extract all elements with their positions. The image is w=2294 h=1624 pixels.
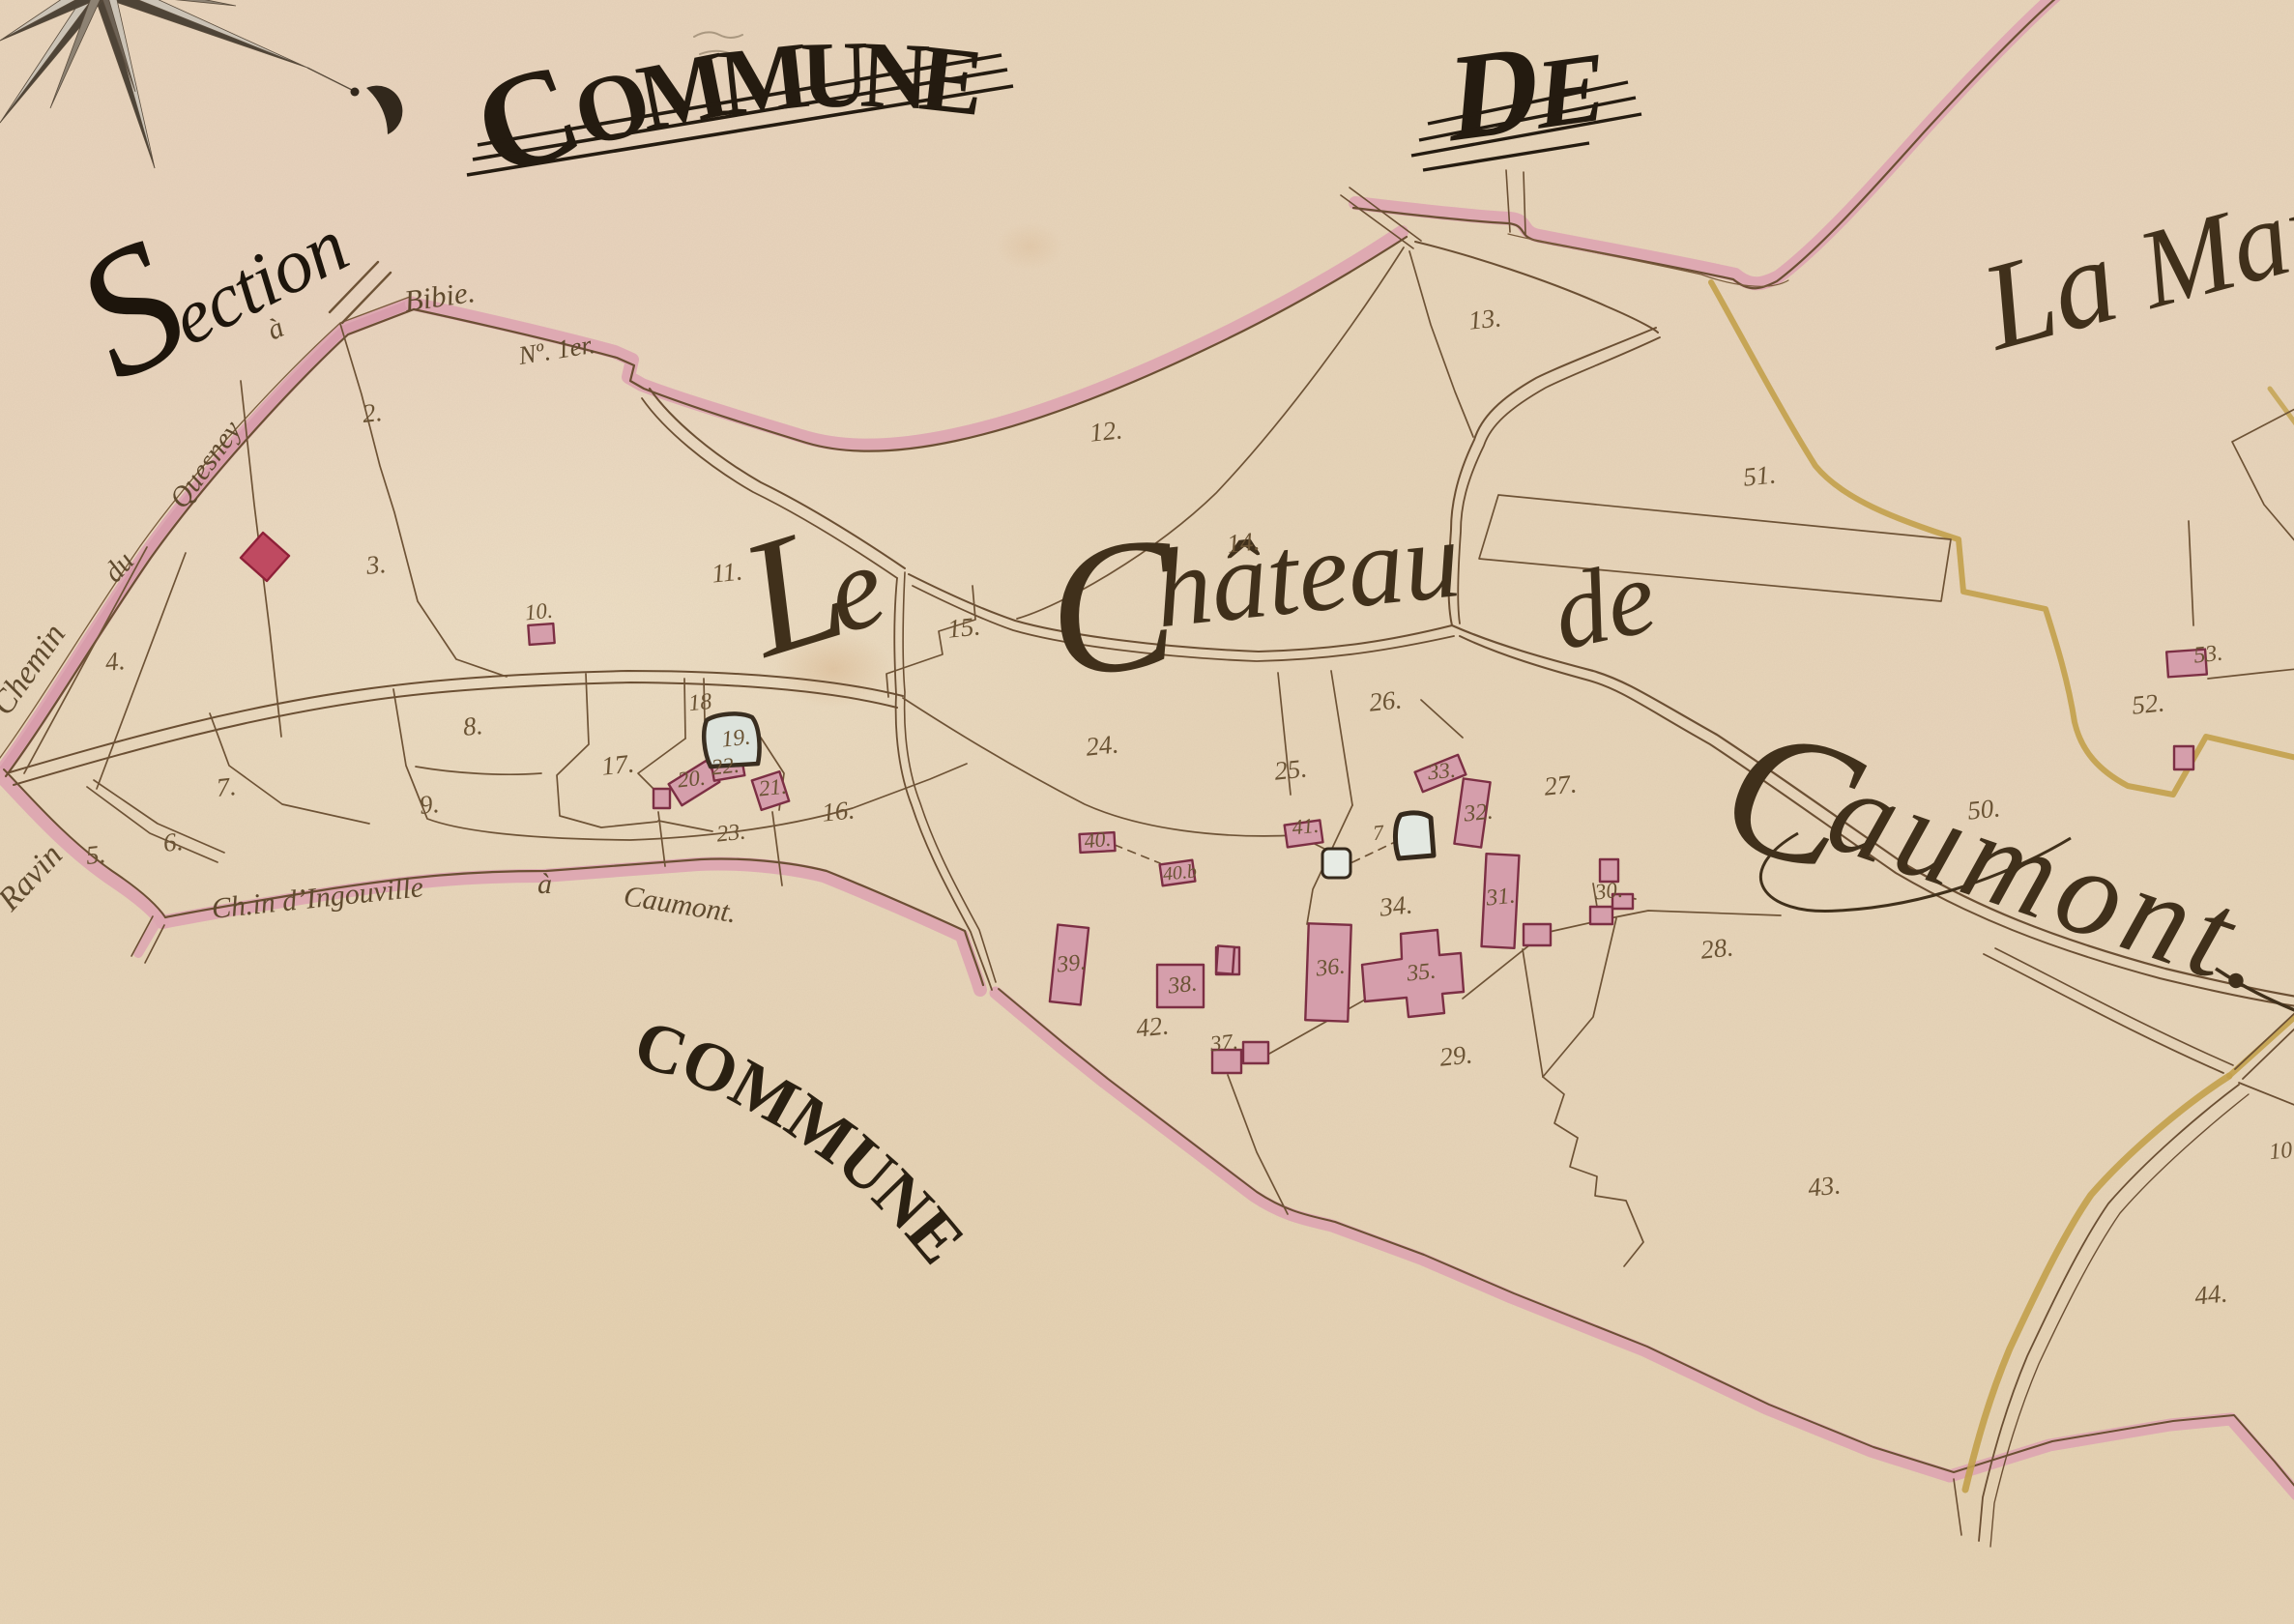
svg-text:13.: 13. <box>1467 303 1503 334</box>
svg-text:52.: 52. <box>2131 687 2166 719</box>
svg-text:30.: 30. <box>1593 878 1624 905</box>
svg-text:9.: 9. <box>418 789 440 820</box>
svg-text:27.: 27. <box>1543 768 1579 800</box>
svg-text:32.: 32. <box>1462 799 1495 827</box>
svg-text:28.: 28. <box>1699 932 1735 964</box>
svg-text:37.: 37. <box>1208 1029 1239 1057</box>
svg-text:26.: 26. <box>1368 684 1404 716</box>
svg-text:31.: 31. <box>1484 884 1517 912</box>
svg-text:14.: 14. <box>1226 526 1262 558</box>
svg-text:33.: 33. <box>1426 758 1457 785</box>
svg-text:15.: 15. <box>946 611 982 643</box>
svg-text:24.: 24. <box>1085 729 1120 761</box>
svg-text:41.: 41. <box>1291 813 1320 840</box>
svg-text:53.: 53. <box>2192 641 2224 669</box>
svg-text:à: à <box>537 868 552 900</box>
svg-text:17.: 17. <box>600 748 636 780</box>
svg-text:10: 10 <box>2268 1138 2294 1165</box>
svg-text:5.: 5. <box>84 839 106 870</box>
svg-text:18: 18 <box>687 689 713 716</box>
svg-text:10.: 10. <box>524 598 554 625</box>
svg-text:11.: 11. <box>711 556 744 588</box>
svg-text:34.: 34. <box>1378 889 1414 921</box>
svg-text:21.: 21. <box>758 774 788 801</box>
svg-text:39.: 39. <box>1055 950 1088 978</box>
svg-text:22.: 22. <box>711 753 740 780</box>
svg-text:4.: 4. <box>103 646 126 677</box>
svg-text:38.: 38. <box>1166 971 1199 1000</box>
svg-text:23.: 23. <box>715 820 747 848</box>
svg-text:43.: 43. <box>1807 1170 1843 1202</box>
svg-text:12.: 12. <box>1089 415 1124 447</box>
svg-text:44.: 44. <box>2193 1278 2229 1310</box>
svg-text:8.: 8. <box>461 710 483 741</box>
svg-text:50.: 50. <box>1966 793 2002 825</box>
svg-text:40.b: 40.b <box>1162 860 1198 885</box>
svg-text:16.: 16. <box>821 795 857 826</box>
svg-text:51.: 51. <box>1742 459 1778 491</box>
svg-text:2.: 2. <box>361 397 383 428</box>
svg-text:25.: 25. <box>1273 753 1309 785</box>
svg-text:3.: 3. <box>363 549 387 580</box>
svg-text:29.: 29. <box>1438 1039 1474 1071</box>
svg-text:35.: 35. <box>1405 959 1437 987</box>
svg-text:36.: 36. <box>1314 954 1347 982</box>
svg-text:6.: 6. <box>161 826 184 857</box>
svg-text:20.: 20. <box>677 766 707 793</box>
svg-text:42.: 42. <box>1135 1010 1171 1042</box>
svg-text:7.: 7. <box>215 771 237 802</box>
svg-text:40.: 40. <box>1083 826 1112 854</box>
svg-text:19.: 19. <box>720 725 752 753</box>
